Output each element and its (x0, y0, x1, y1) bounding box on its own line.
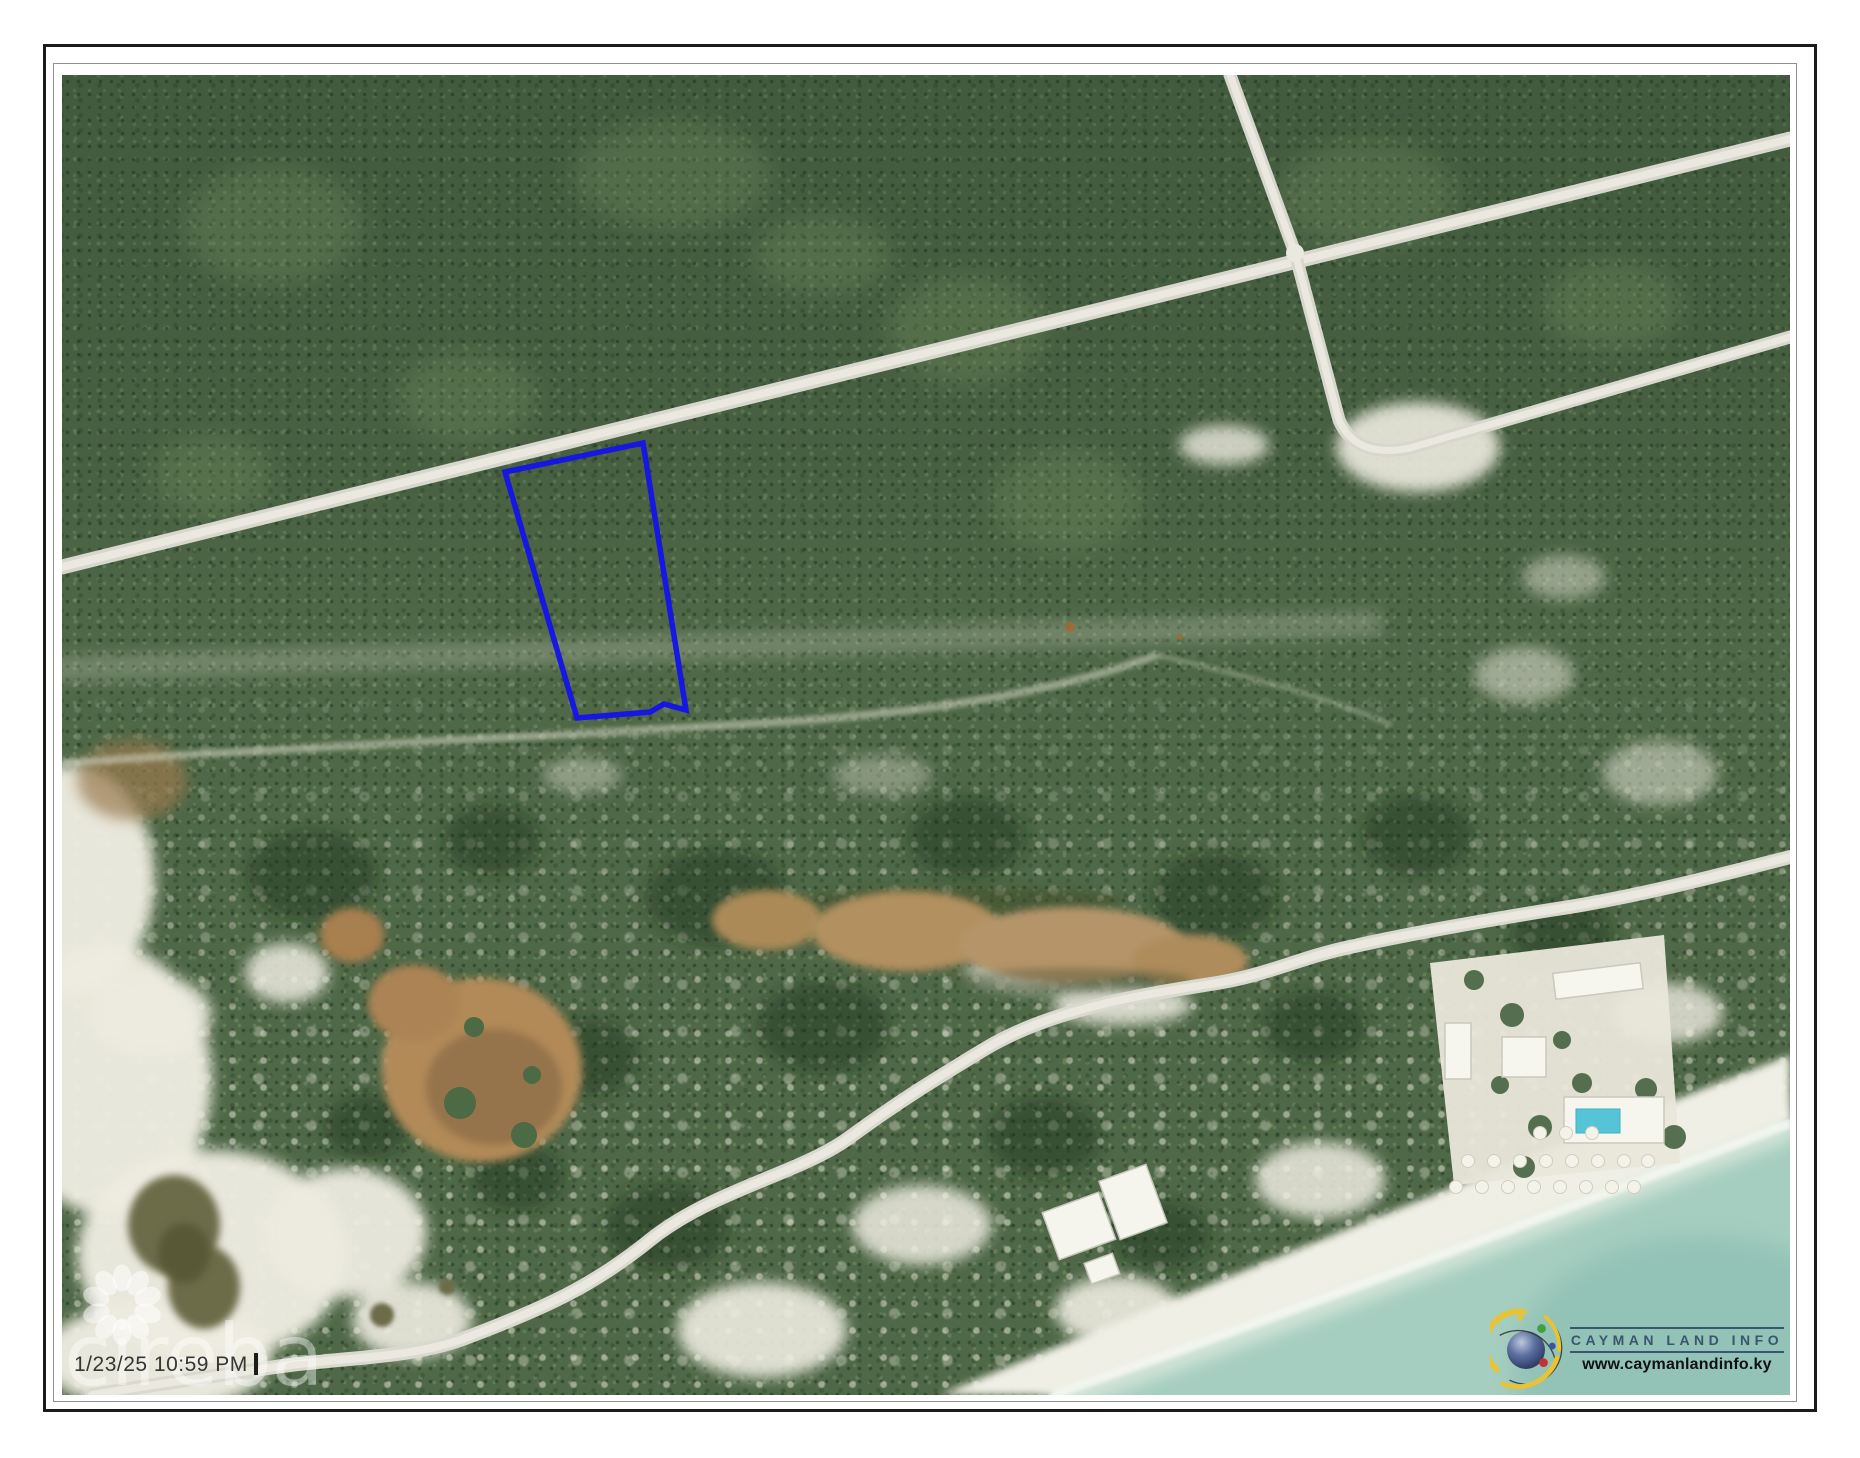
timestamp-text: 1/23/25 10:59 PM (74, 1353, 248, 1376)
logo-rule-bottom (1570, 1351, 1784, 1353)
resort-compound (1430, 935, 1686, 1185)
terrain-overlay (62, 75, 1790, 1395)
aerial-map-canvas: cireba 1/23/25 10:59 PM (62, 75, 1790, 1395)
brand-website: www.caymanlandinfo.ky (1570, 1356, 1784, 1374)
rocky-ridge-band (62, 610, 1382, 683)
globe-icon (1490, 1305, 1564, 1393)
timestamp: 1/23/25 10:59 PM (74, 1353, 258, 1377)
logo-rule-top (1570, 1327, 1784, 1329)
brand-name: CAYMAN LAND INFO (1570, 1332, 1784, 1348)
timestamp-cursor (254, 1353, 258, 1375)
parcel-boundary (505, 443, 686, 718)
map-export-page: cireba 1/23/25 10:59 PM (0, 0, 1860, 1458)
cayman-land-info-logo: CAYMAN LAND INFO www.caymanlandinfo.ky (1490, 1305, 1784, 1393)
